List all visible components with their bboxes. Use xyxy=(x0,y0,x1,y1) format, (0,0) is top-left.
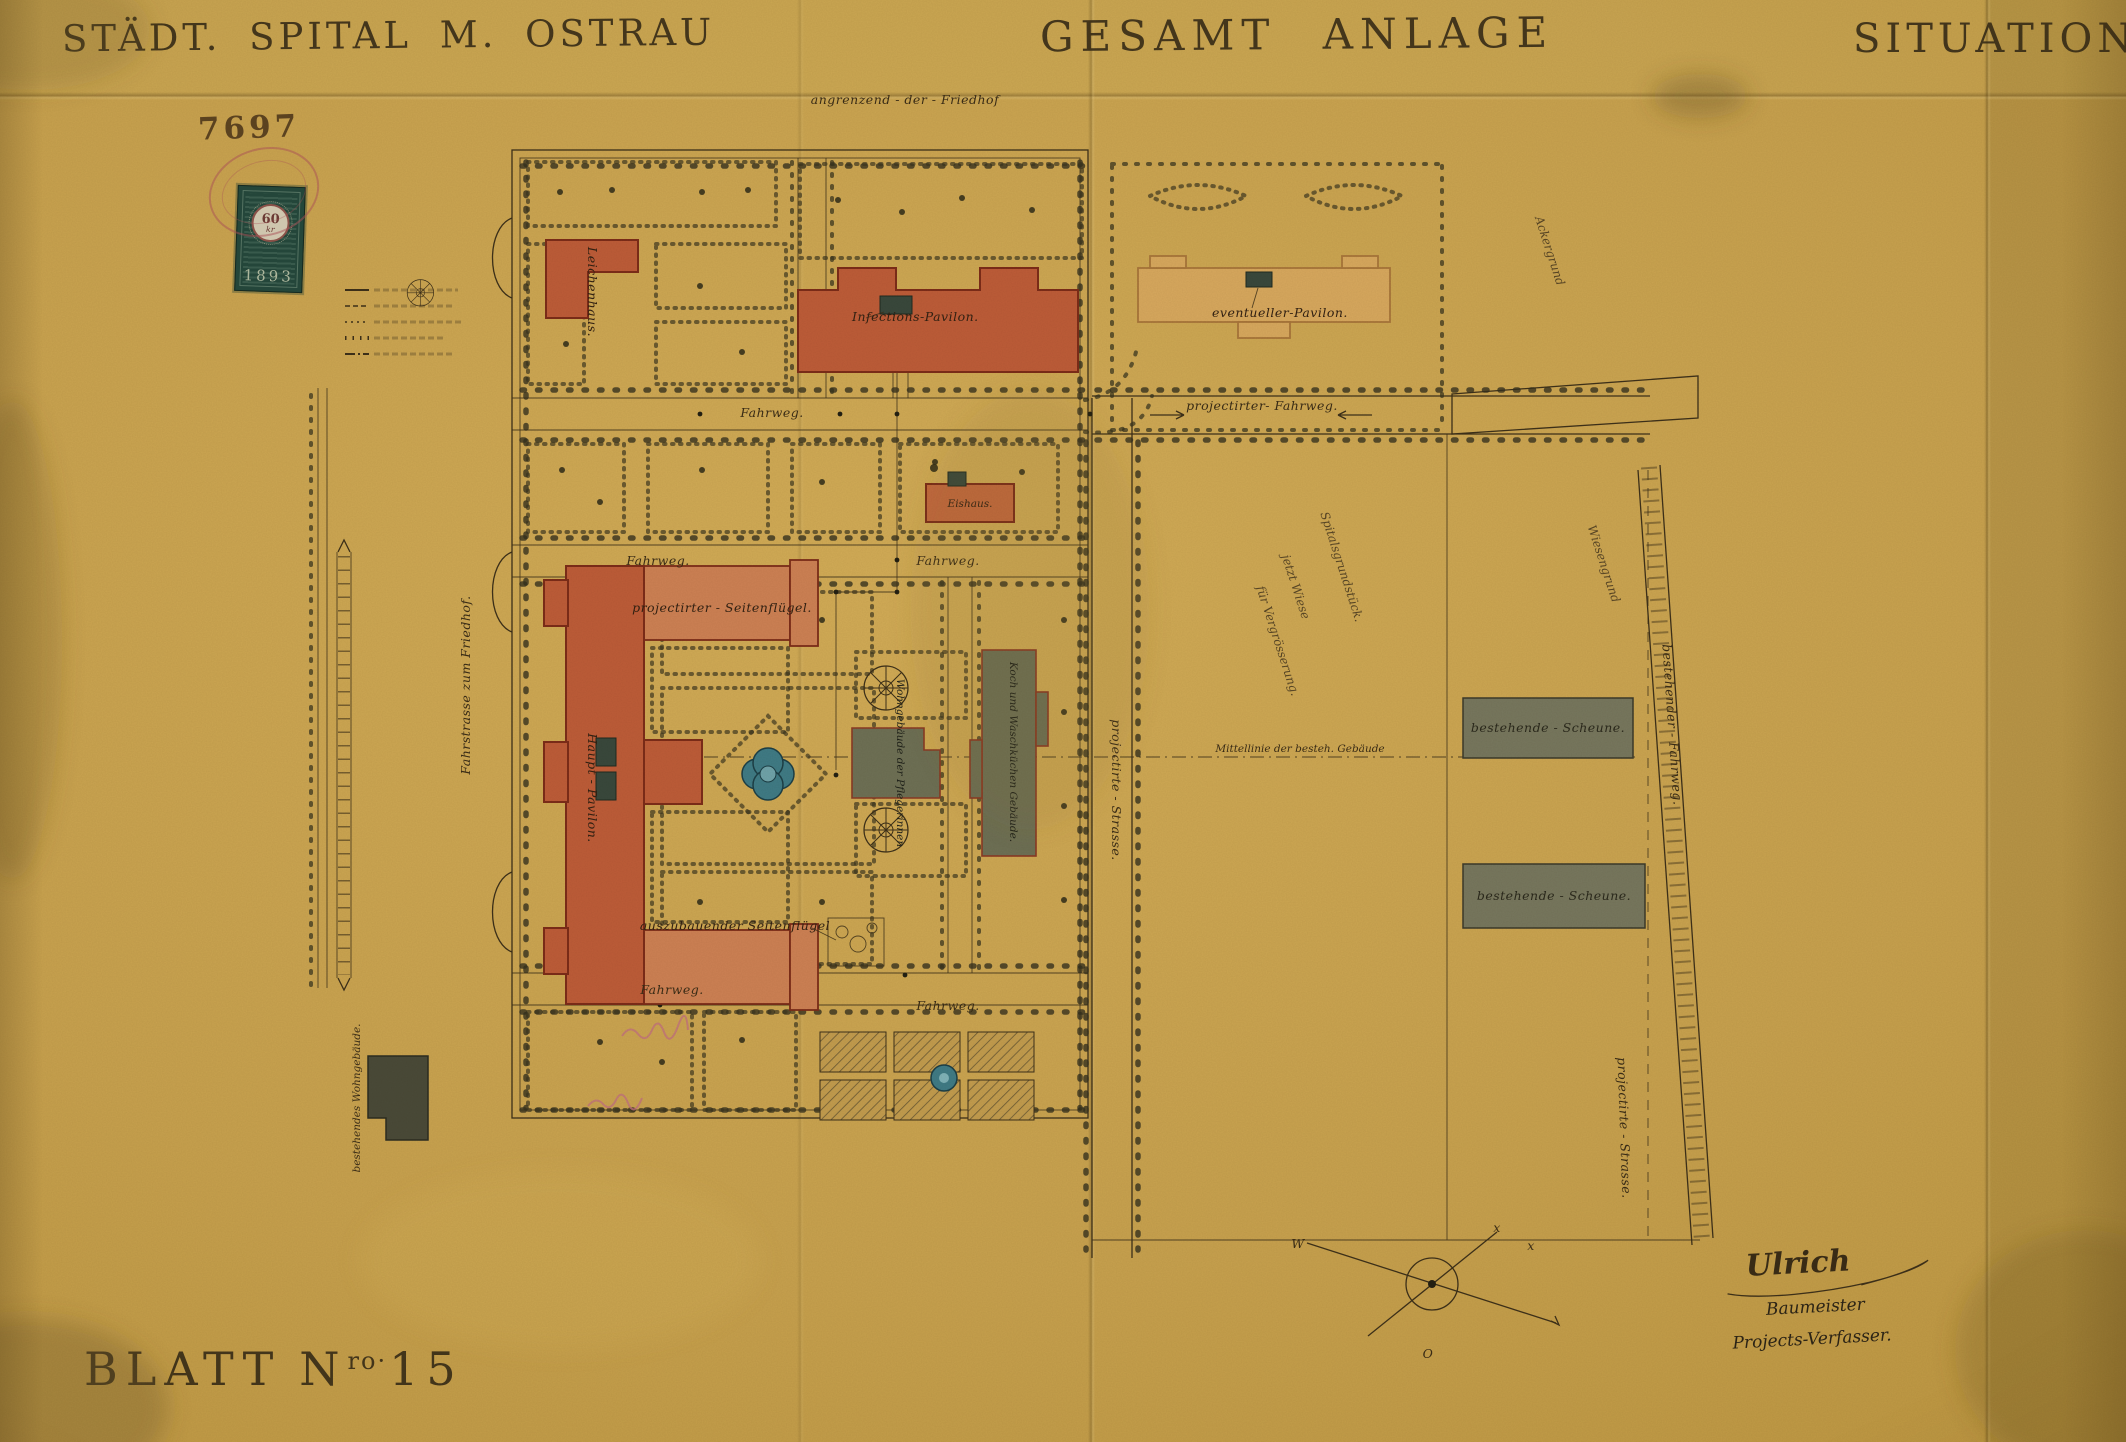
stamp-year: 1893 xyxy=(235,266,302,286)
site-plan: W x x O Ulrich Baumeister Projects-Verfa… xyxy=(0,0,2126,1442)
plan-sheet: STÄDT. SPITAL M. OSTRAU GESAMT ANLAGE SI… xyxy=(0,0,2126,1442)
paper-grain xyxy=(0,0,2126,1442)
